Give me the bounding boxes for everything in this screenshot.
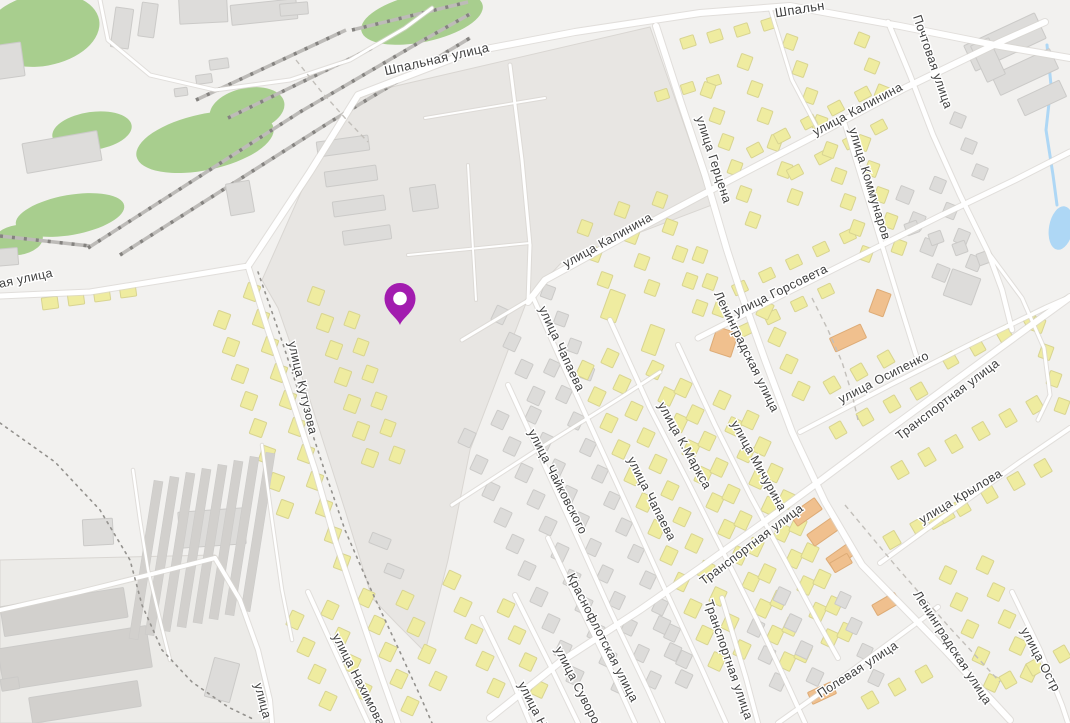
- building: [409, 184, 438, 211]
- building: [0, 677, 20, 692]
- building: [174, 87, 188, 97]
- building: [209, 58, 229, 71]
- map-canvas: Шпальная улицаШпальнПочтовая улицаулица …: [0, 0, 1070, 723]
- pin-center-dot: [393, 292, 407, 306]
- building: [0, 42, 25, 82]
- building: [0, 247, 19, 266]
- building: [225, 180, 254, 216]
- building: [41, 296, 59, 310]
- building: [280, 2, 309, 16]
- building: [82, 518, 113, 546]
- building: [195, 73, 212, 84]
- building: [178, 0, 228, 24]
- map-viewport[interactable]: Шпальная улицаШпальнПочтовая улицаулица …: [0, 0, 1070, 723]
